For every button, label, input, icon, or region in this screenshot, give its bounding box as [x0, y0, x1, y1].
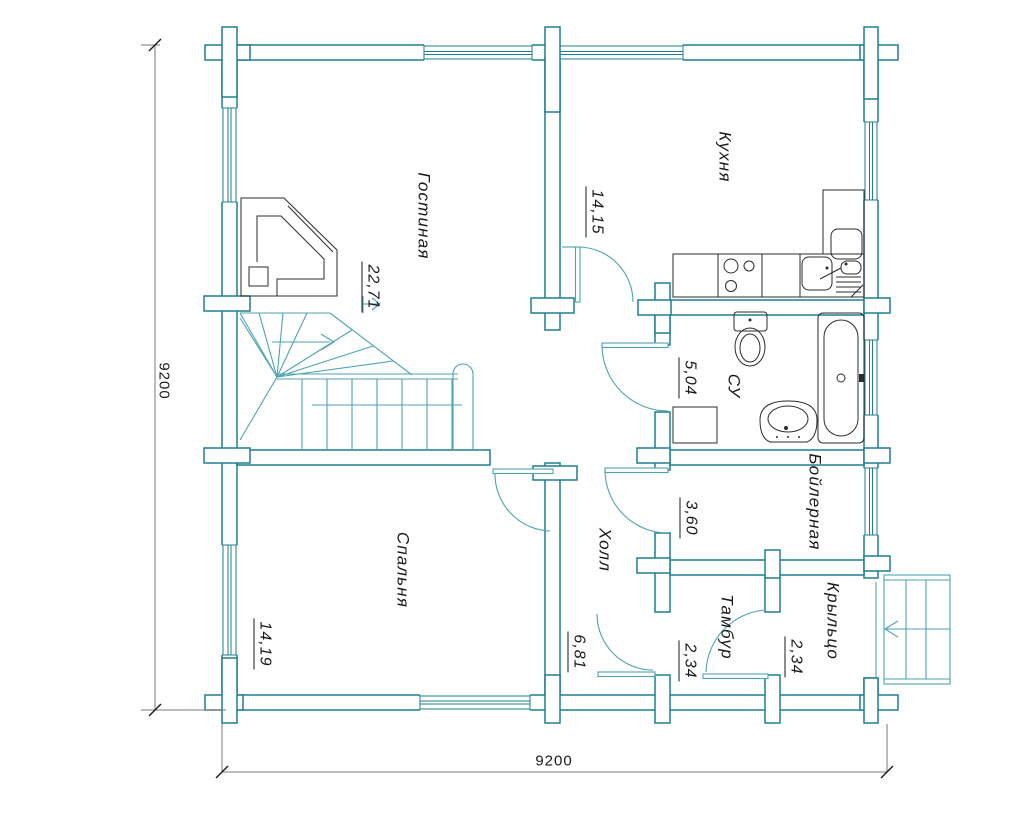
window-top-living [424, 44, 532, 61]
kitchen-counter-return [823, 190, 864, 254]
window-left-bedroom [221, 545, 238, 655]
stair-newel-post [453, 364, 473, 450]
window-right-bath [863, 340, 879, 415]
window-bottom-bedroom [420, 694, 530, 711]
room-area-hall: 6,81 [568, 631, 587, 672]
floor-plan-drawing [0, 0, 1024, 819]
dimension-left-value: 9200 [157, 362, 172, 399]
kitchen-counter [673, 254, 864, 297]
room-label-boiler: Бойлерная [807, 453, 824, 550]
wall-bath-boiler [670, 450, 864, 465]
wall-tambour-porch-2 [765, 675, 780, 723]
door-bathroom [602, 343, 668, 411]
porch-steps [876, 575, 950, 684]
room-label-bedroom: Спальня [395, 532, 412, 608]
room-label-porch: Крыльцо [825, 582, 842, 660]
room-area-porch: 2,34 [785, 636, 804, 677]
floor-plan: Гостиная 22,71 Кухня 14,15 СУ 5,04 Бойле… [0, 0, 1024, 819]
wall-hall-tambour-end [655, 675, 670, 723]
room-label-tambour: Тамбур [719, 594, 736, 659]
room-label-living: Гостиная [416, 172, 433, 259]
bathroom-fixtures [673, 312, 864, 443]
interior-walls [237, 58, 864, 723]
room-area-boiler: 3,60 [680, 497, 699, 538]
window-right-boiler [863, 468, 879, 535]
wall-tambour-porch-1 [765, 575, 780, 612]
room-label-hall: Холл [597, 528, 614, 572]
window-top-kitchen [560, 44, 683, 61]
washbasin [760, 401, 817, 442]
room-area-bathroom: 5,04 [679, 357, 698, 398]
room-label-kitchen: Кухня [717, 131, 734, 182]
room-area-tambour: 2,34 [679, 640, 698, 681]
door-kitchen [562, 247, 633, 302]
door-hall-tambour [597, 614, 655, 677]
room-area-living: 22,71 [362, 261, 381, 312]
toilet [734, 312, 767, 366]
wall-bedroom-hall [545, 463, 560, 695]
window-right-kitchen [863, 122, 879, 200]
room-area-kitchen: 14,15 [586, 186, 605, 237]
window-left-living [221, 108, 238, 202]
bathtub [818, 313, 864, 443]
washing-machine [673, 407, 717, 443]
fireplace [241, 198, 337, 296]
kitchen-fixtures [673, 190, 864, 297]
cooktop [724, 259, 754, 292]
kitchen-sink [802, 229, 863, 297]
room-area-bedroom: 14,19 [254, 618, 273, 669]
door-boiler [605, 468, 668, 533]
wall-bedroom-top [237, 450, 490, 465]
room-label-bathroom: СУ [726, 374, 743, 399]
staircase [240, 296, 473, 450]
dimension-bottom-value: 9200 [535, 754, 572, 769]
